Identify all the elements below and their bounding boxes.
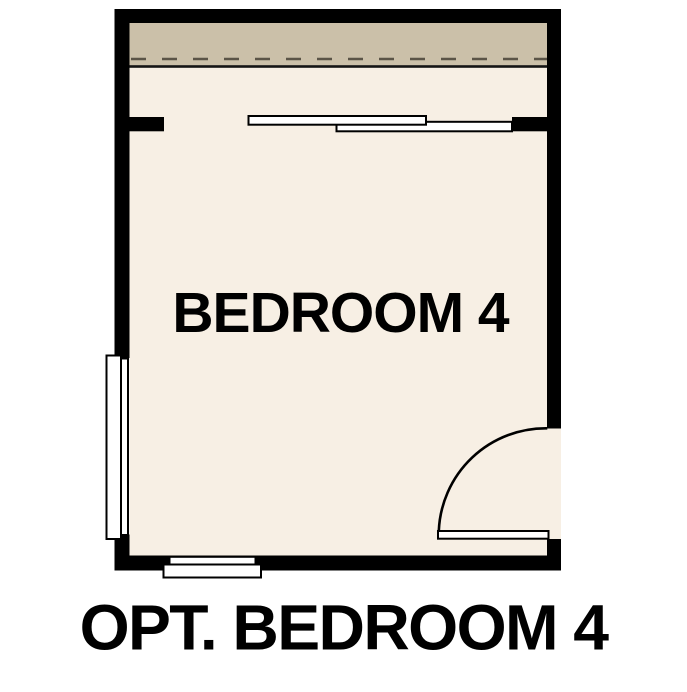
svg-text:BEDROOM 4: BEDROOM 4 [172,281,510,345]
svg-text:OPT. BEDROOM 4: OPT. BEDROOM 4 [80,592,610,664]
